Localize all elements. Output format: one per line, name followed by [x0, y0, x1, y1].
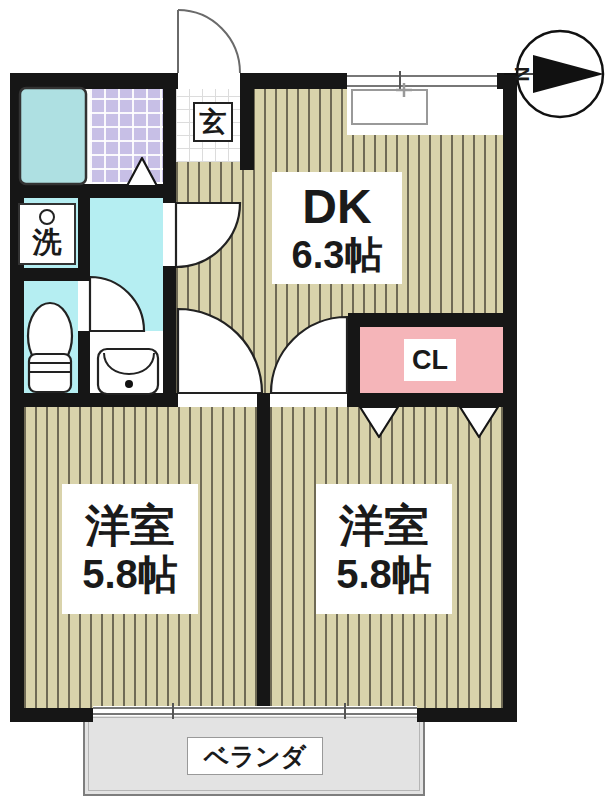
bedroom-left-door	[178, 309, 262, 393]
dk-size: 6.3帖	[292, 234, 383, 277]
dk-name: DK	[302, 180, 371, 234]
bath-door-triangle	[127, 158, 157, 186]
bedroom-right-label-badge: 洋室 5.8帖	[316, 484, 452, 614]
genkan-label-badge: 玄	[193, 102, 233, 142]
kitchen-sink-icon	[352, 83, 427, 124]
veranda-label-badge: ベランダ	[187, 737, 323, 775]
toilet-icon	[28, 303, 72, 392]
compass-north-label: N	[510, 63, 534, 85]
bedroom-left-size: 5.8帖	[82, 552, 178, 597]
veranda-label: ベランダ	[204, 742, 306, 770]
laundry-label-badge: 洗	[18, 203, 76, 265]
dk-label-badge: DK 6.3帖	[272, 172, 402, 284]
closet-label: CL	[412, 345, 448, 375]
bedroom-right-door	[271, 317, 347, 393]
closet-label-badge: CL	[404, 339, 456, 381]
bedroom-right-size: 5.8帖	[336, 552, 432, 597]
kitchen-window	[347, 71, 497, 90]
bedroom-left-name: 洋室	[85, 501, 175, 551]
laundry-label: 洗	[33, 226, 62, 258]
veranda-window	[93, 703, 417, 719]
tap-icon	[39, 209, 55, 225]
bedroom-right-name: 洋室	[339, 501, 429, 551]
hall-dk-door	[176, 203, 240, 267]
closet-door-triangle-right	[460, 407, 498, 437]
floor-plan: 玄 洗 DK 6.3帖 CL 洋室 5.8帖 洋室 5.8帖 ベランダ N	[0, 0, 608, 800]
bedroom-left-label-badge: 洋室 5.8帖	[62, 484, 198, 614]
toilet-door	[90, 277, 144, 331]
washbasin-icon	[98, 349, 158, 394]
structure-overlay	[0, 0, 608, 800]
bathtub-icon	[20, 88, 86, 184]
closet-door-triangle-left	[360, 407, 398, 437]
entrance-door	[178, 10, 240, 73]
genkan-label: 玄	[200, 107, 227, 137]
